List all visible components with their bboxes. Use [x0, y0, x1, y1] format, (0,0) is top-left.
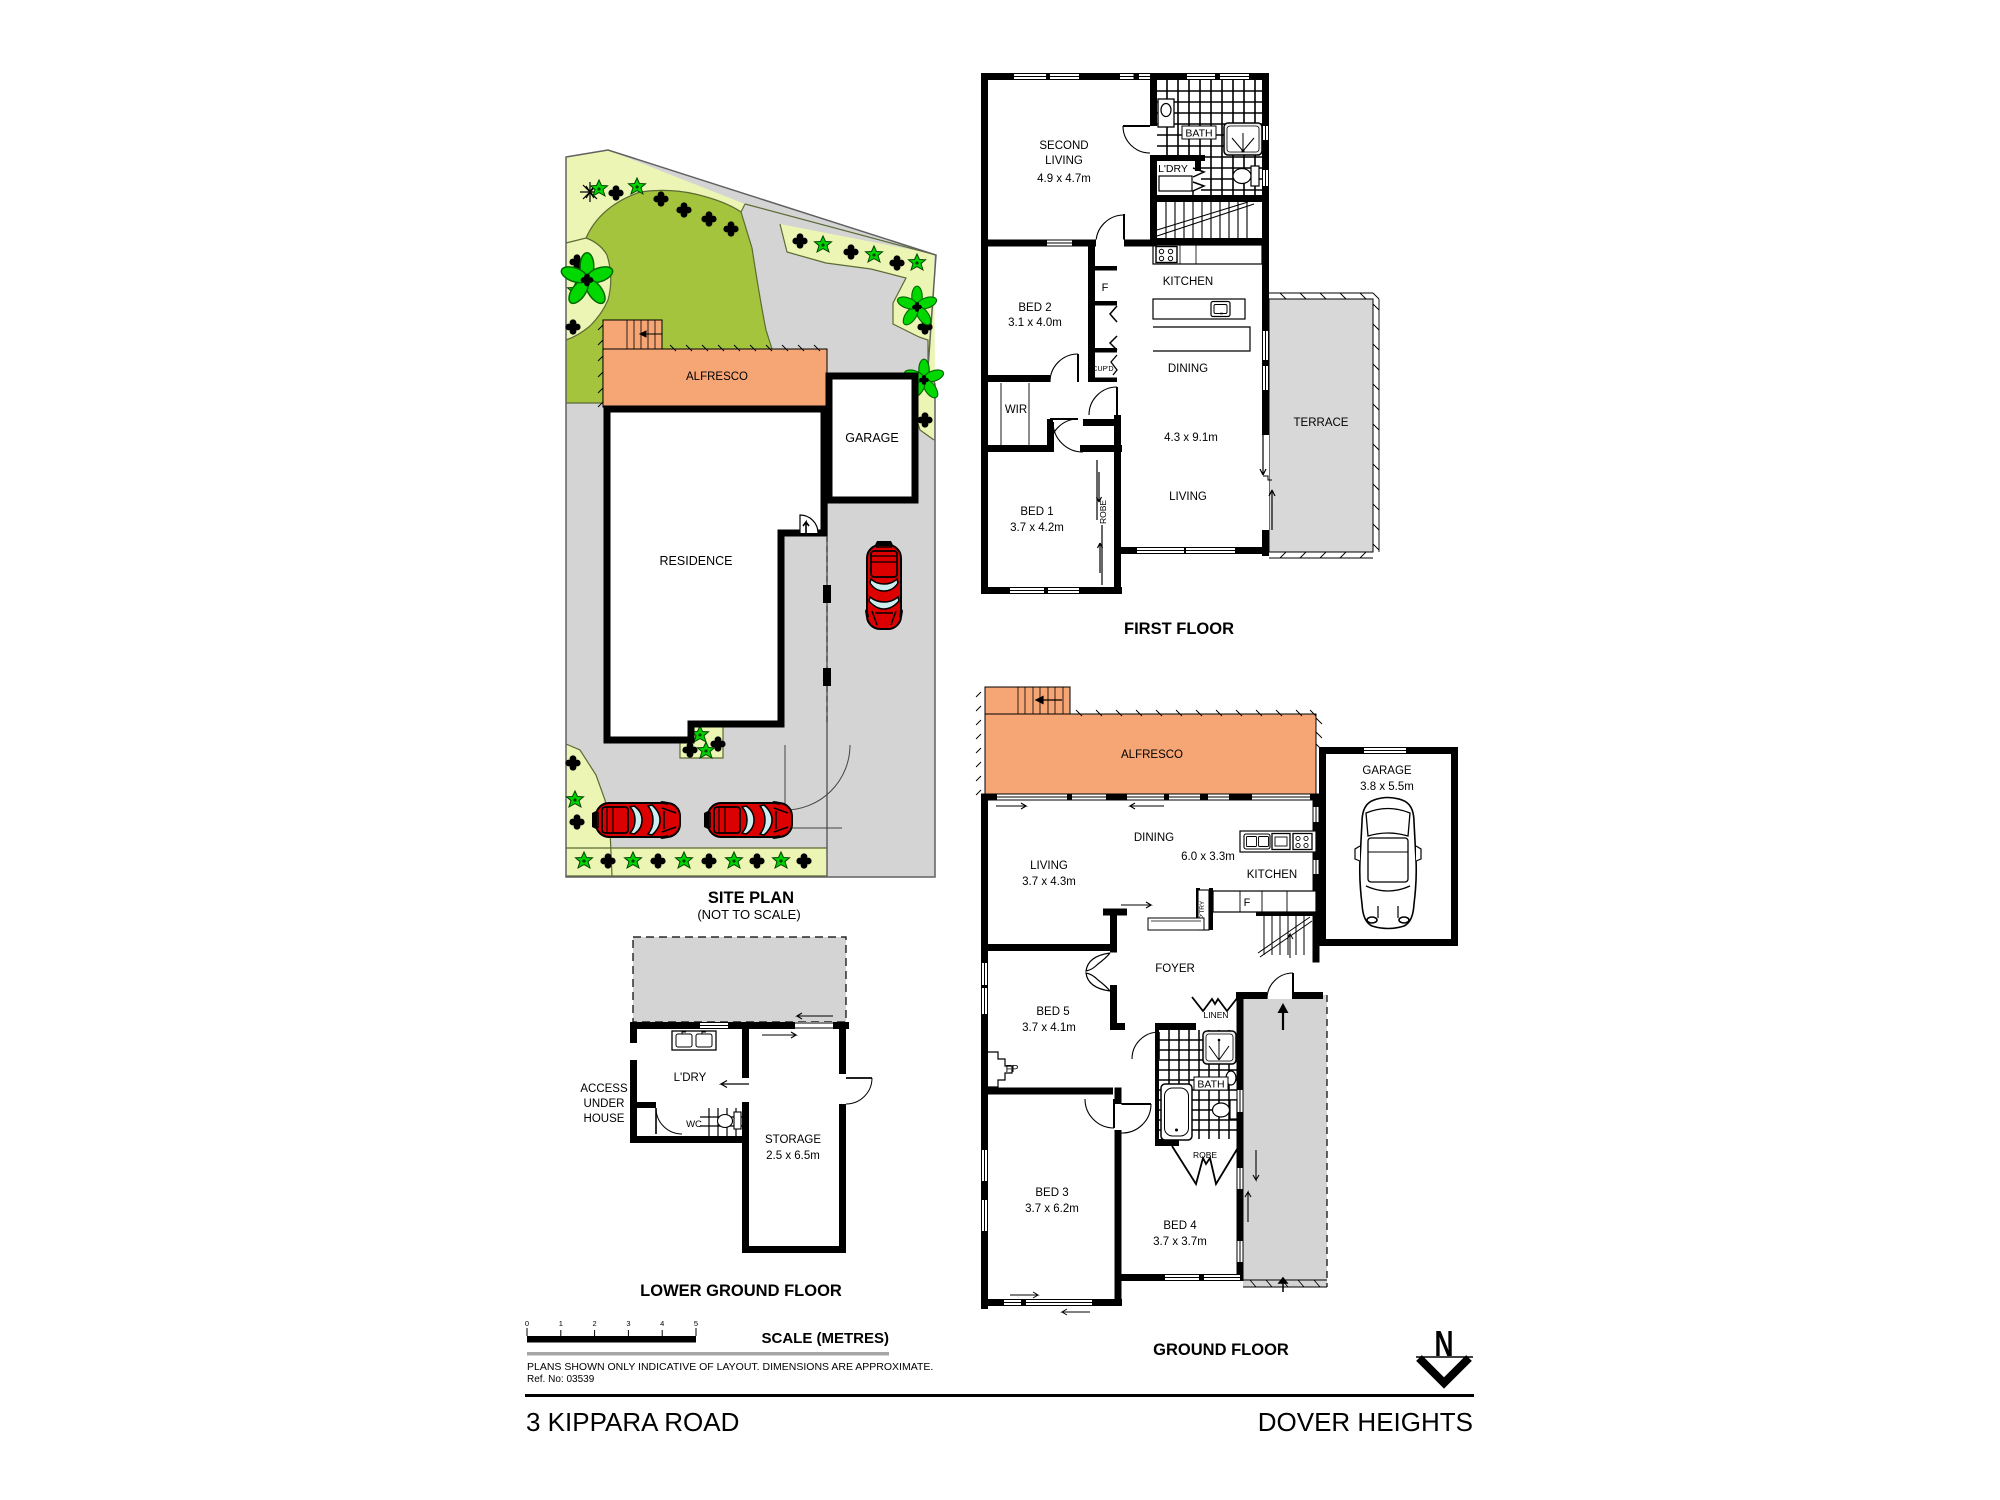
svg-text:BED 2: BED 2	[1018, 302, 1051, 314]
svg-text:BED 3: BED 3	[1035, 1187, 1068, 1199]
svg-text:RESIDENCE: RESIDENCE	[660, 554, 733, 568]
svg-text:LIVING: LIVING	[1169, 491, 1207, 503]
svg-text:ALFRESCO: ALFRESCO	[1121, 749, 1183, 761]
svg-text:SITE PLAN: SITE PLAN	[708, 889, 794, 907]
svg-text:1: 1	[559, 1319, 563, 1328]
svg-text:N: N	[1435, 1323, 1454, 1364]
svg-text:FP: FP	[1006, 1064, 1019, 1075]
svg-text:LINEN: LINEN	[1203, 1010, 1228, 1020]
svg-text:GARAGE: GARAGE	[845, 431, 899, 445]
svg-text:DINING: DINING	[1134, 832, 1174, 844]
svg-text:3.1 x 4.0m: 3.1 x 4.0m	[1008, 317, 1062, 329]
svg-text:F: F	[1102, 282, 1109, 294]
svg-text:(NOT TO SCALE): (NOT TO SCALE)	[697, 907, 800, 922]
svg-text:BED 4: BED 4	[1163, 1220, 1197, 1232]
svg-text:3.7 x 6.2m: 3.7 x 6.2m	[1025, 1203, 1079, 1215]
svg-text:ROBE: ROBE	[1193, 1150, 1217, 1160]
svg-text:KITCHEN: KITCHEN	[1163, 276, 1213, 288]
svg-text:BATH: BATH	[1185, 128, 1212, 140]
svg-text:Ref. No: 03539: Ref. No: 03539	[527, 1374, 595, 1385]
svg-text:DOVER HEIGHTS: DOVER HEIGHTS	[1258, 1407, 1473, 1437]
svg-text:LIVING: LIVING	[1030, 860, 1068, 872]
svg-text:L'DRY: L'DRY	[1158, 163, 1188, 175]
svg-text:UNDER: UNDER	[584, 1098, 625, 1110]
svg-text:HOUSE: HOUSE	[584, 1113, 625, 1125]
svg-text:FIRST FLOOR: FIRST FLOOR	[1124, 620, 1234, 638]
svg-text:0: 0	[525, 1319, 529, 1328]
svg-text:BATH: BATH	[1197, 1079, 1224, 1091]
svg-text:CUP'D: CUP'D	[1092, 366, 1113, 373]
svg-text:3 KIPPARA ROAD: 3 KIPPARA ROAD	[526, 1407, 739, 1437]
svg-text:STORAGE: STORAGE	[765, 1134, 821, 1146]
svg-text:LIVING: LIVING	[1045, 155, 1083, 167]
svg-text:BED 1: BED 1	[1020, 506, 1053, 518]
svg-text:DINING: DINING	[1168, 363, 1208, 375]
svg-text:ACCESS: ACCESS	[580, 1083, 628, 1095]
svg-text:4.9 x 4.7m: 4.9 x 4.7m	[1037, 173, 1091, 185]
svg-text:3.8 x 5.5m: 3.8 x 5.5m	[1360, 781, 1414, 793]
svg-text:5: 5	[694, 1319, 698, 1328]
svg-text:SECOND: SECOND	[1039, 140, 1088, 152]
svg-text:4.3 x 9.1m: 4.3 x 9.1m	[1164, 432, 1218, 444]
svg-text:FOYER: FOYER	[1155, 963, 1195, 975]
svg-text:KITCHEN: KITCHEN	[1247, 869, 1297, 881]
svg-text:2: 2	[593, 1319, 597, 1328]
svg-text:GARAGE: GARAGE	[1362, 765, 1412, 777]
svg-text:F: F	[1244, 897, 1251, 909]
svg-text:BED 5: BED 5	[1036, 1006, 1069, 1018]
svg-text:4: 4	[660, 1319, 664, 1328]
svg-text:WC: WC	[686, 1119, 702, 1130]
svg-text:SCALE (METRES): SCALE (METRES)	[762, 1330, 890, 1347]
svg-text:TERRACE: TERRACE	[1294, 417, 1349, 429]
svg-text:LOWER GROUND FLOOR: LOWER GROUND FLOOR	[640, 1282, 842, 1300]
svg-text:ROBE: ROBE	[1098, 500, 1108, 524]
svg-text:3.7 x 3.7m: 3.7 x 3.7m	[1153, 1236, 1207, 1248]
svg-text:P'TRY: P'TRY	[1199, 900, 1206, 919]
svg-text:3.7 x 4.3m: 3.7 x 4.3m	[1022, 876, 1076, 888]
svg-text:PLANS SHOWN ONLY INDICATIVE OF: PLANS SHOWN ONLY INDICATIVE OF LAYOUT. D…	[527, 1361, 933, 1373]
svg-text:GROUND FLOOR: GROUND FLOOR	[1153, 1341, 1289, 1359]
svg-text:3.7 x 4.2m: 3.7 x 4.2m	[1010, 522, 1064, 534]
svg-text:L'DRY: L'DRY	[674, 1072, 707, 1084]
svg-text:2.5 x 6.5m: 2.5 x 6.5m	[766, 1150, 820, 1162]
svg-text:3.7 x 4.1m: 3.7 x 4.1m	[1022, 1022, 1076, 1034]
svg-text:ALFRESCO: ALFRESCO	[686, 371, 748, 383]
svg-text:6.0 x 3.3m: 6.0 x 3.3m	[1181, 851, 1235, 863]
svg-text:WIR: WIR	[1005, 404, 1027, 416]
svg-text:3: 3	[626, 1319, 630, 1328]
